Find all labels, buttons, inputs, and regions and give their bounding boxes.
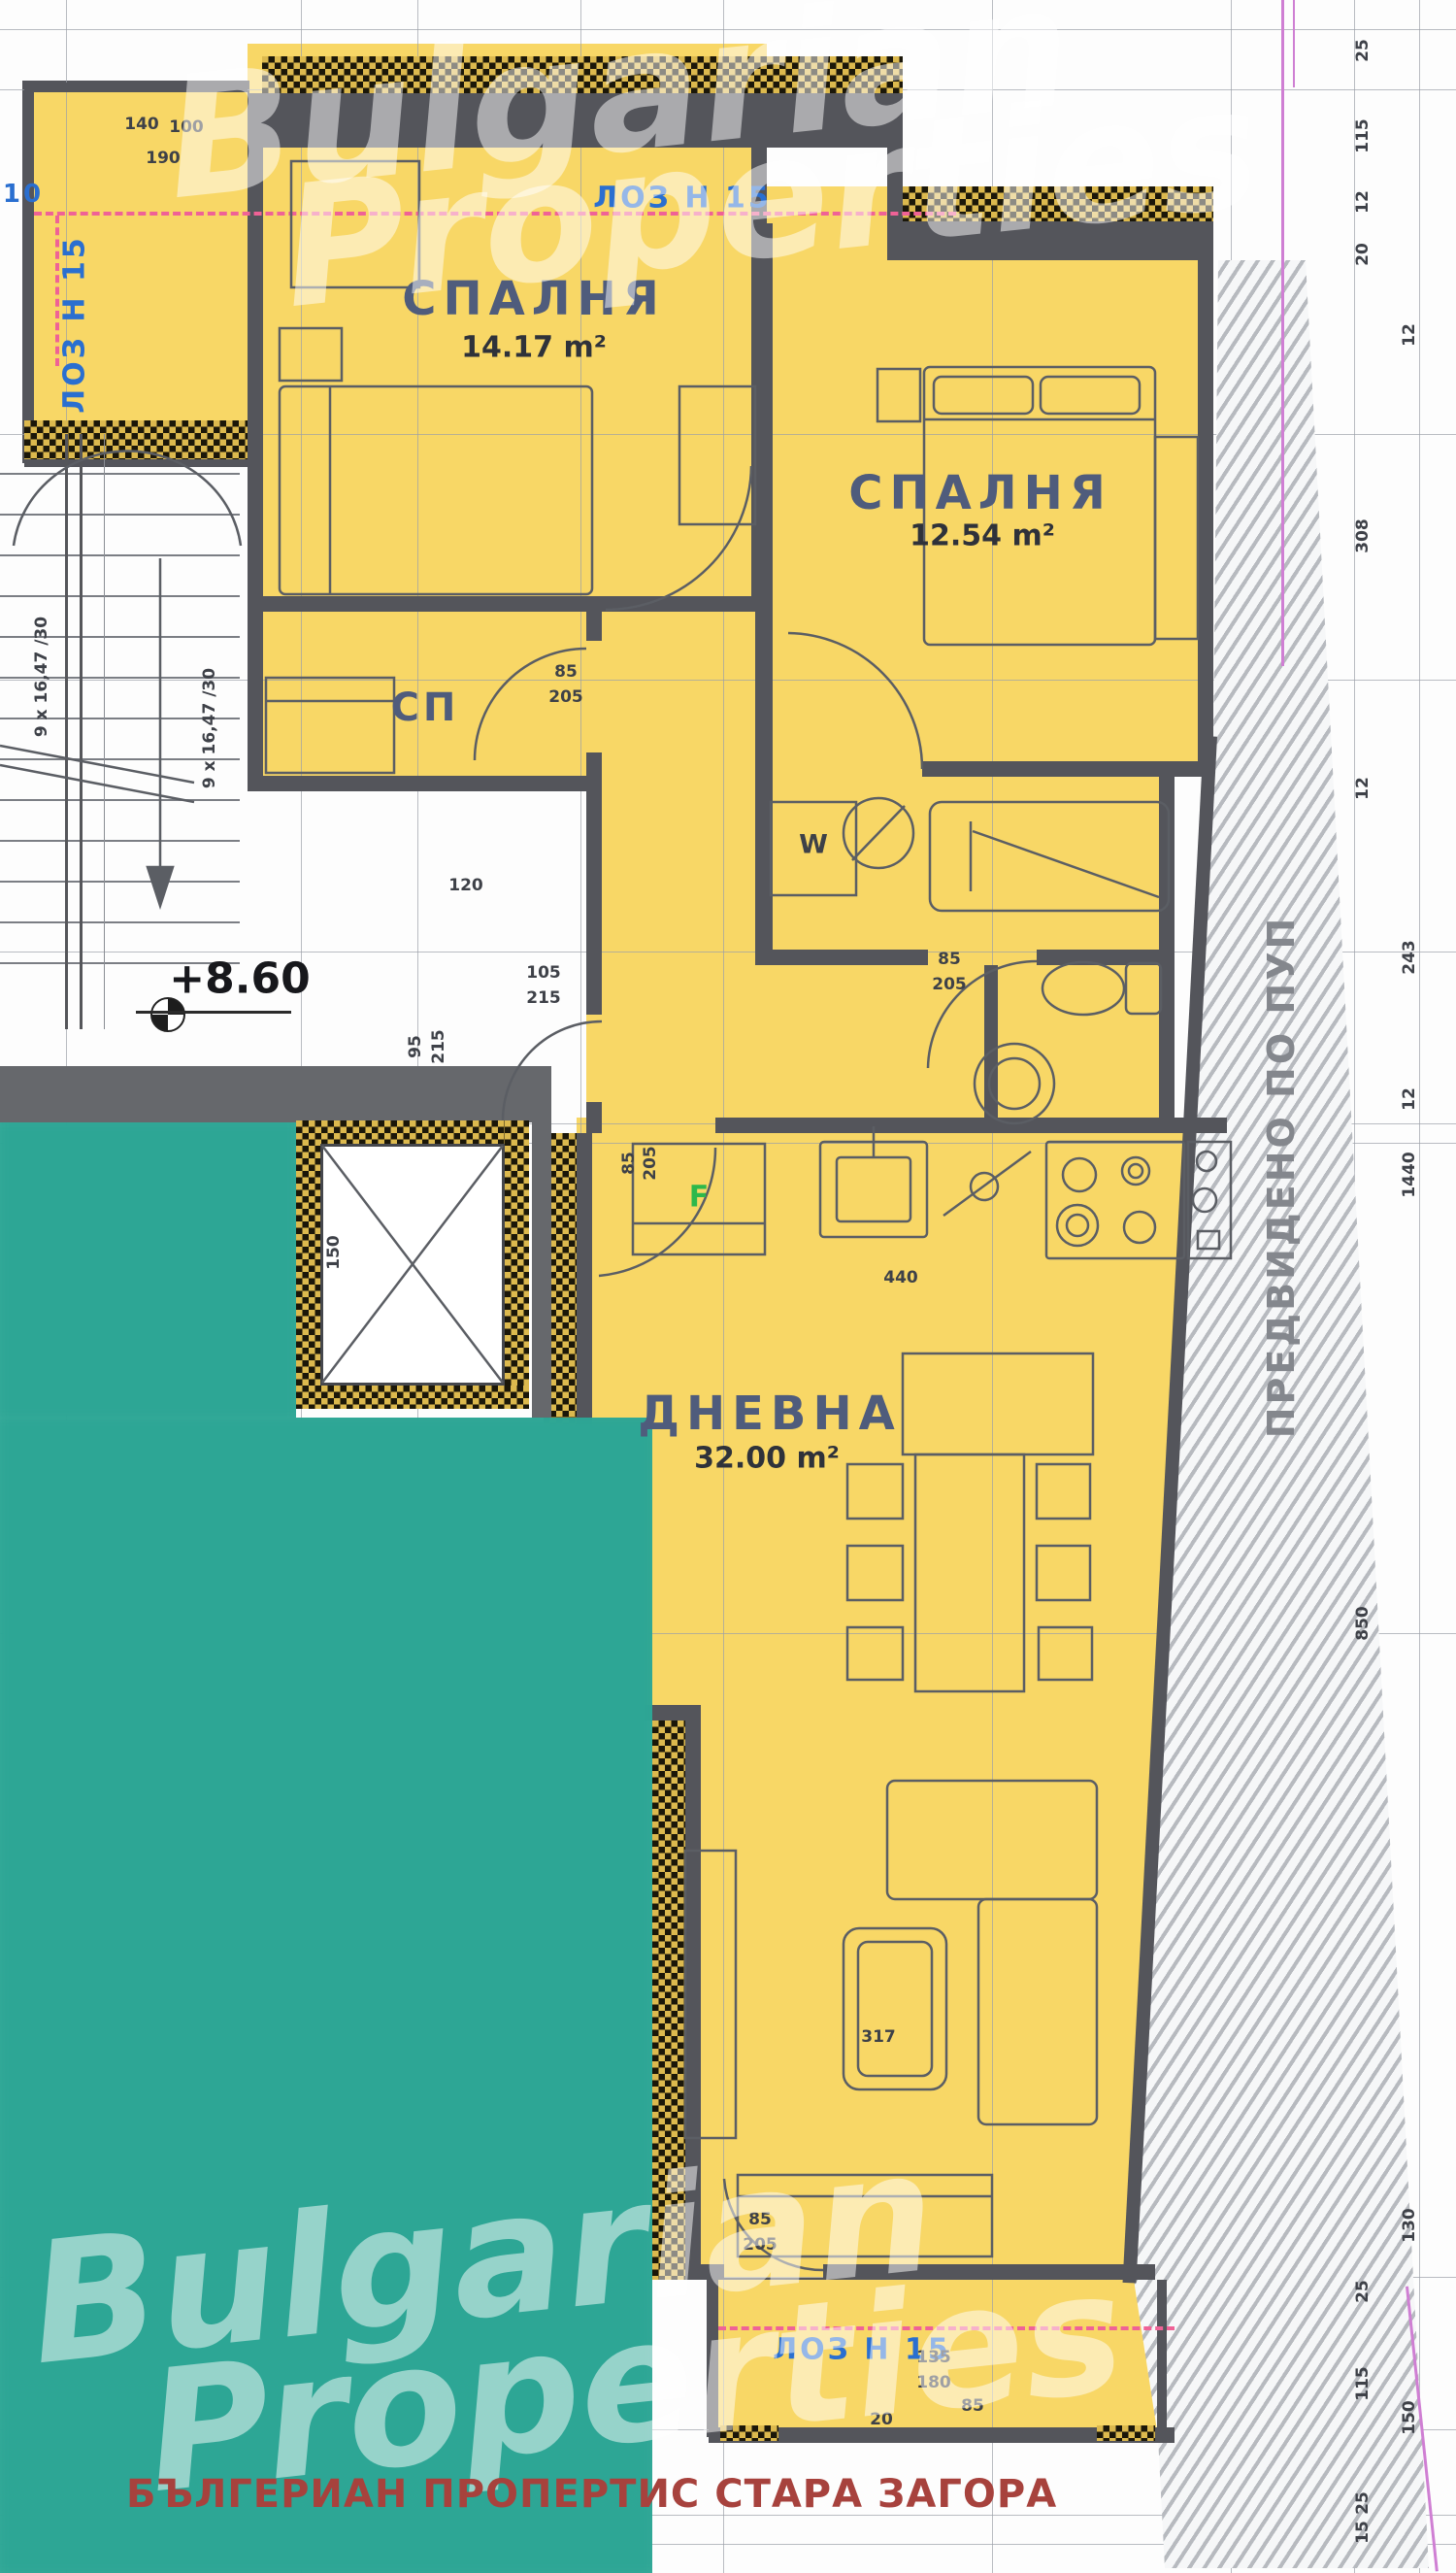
dimension-label: 1440 [1400,1152,1419,1197]
wall [586,752,602,791]
dimension-label: 12 [1400,1087,1419,1111]
wall [755,223,773,965]
dimension-label: 130 [1400,2208,1419,2243]
wall [984,965,998,1118]
regulation-line [1281,0,1284,666]
slab-band [0,1066,551,1122]
dimension-label: 180 [916,2373,951,2392]
dimension-label: 25 [1353,39,1373,62]
stair-note: 9 x 16,47 /30 [32,617,51,737]
dimension-label: 25 [1353,2280,1373,2303]
dimension-label: 120 [448,876,483,895]
dimension-label: 205 [743,2235,778,2255]
wall [1159,777,1175,950]
regulation-line [1293,0,1295,87]
wall [1159,965,1175,1133]
balcony-top-left-label: ЛОЗ Н 15 [58,235,92,413]
dimension-label: 85 [619,1152,639,1175]
wall [685,1721,701,2280]
dimension-label: 20 [1353,243,1373,266]
wall [715,1118,1227,1133]
wall [586,1102,602,1133]
wall [24,83,248,92]
floor-plan: +8.60 СПАЛНЯ 14.17 m² СПАЛНЯ 12.54 m² СП… [0,0,1456,2573]
dimension-label: 205 [548,687,583,707]
grid-reference-label: 10 [3,180,44,209]
grid-line-v [1419,0,1420,2573]
storage-label: СП [391,685,460,730]
fridge-label: F [689,1181,710,1215]
living-area: 32.00 m² [694,1442,840,1476]
wall [767,950,928,965]
wall [586,791,602,1015]
insulation-balcony-bottom [1097,2425,1155,2441]
adjacent-apartment-fill [0,1418,652,2573]
dimension-label: 12 [1400,323,1419,347]
dimension-label: 140 [124,115,159,134]
dimension-label: 25 [1353,2491,1373,2515]
bedroom2-label: СПАЛНЯ [848,466,1112,520]
bedroom1-label: СПАЛНЯ [402,272,666,326]
dimension-label: 85 [938,950,961,969]
grid-line-v [992,0,993,2573]
dimension-label: 85 [554,662,578,682]
stair-rail [65,434,68,1029]
dimension-label: 190 [146,149,181,168]
dimension-label: 150 [1400,2400,1419,2435]
wall [709,2280,718,2443]
elevator-wall [296,1120,320,1409]
bedroom1-area: 14.17 m² [461,331,607,365]
dimension-label: 150 [324,1235,344,1270]
wall [903,221,1213,260]
stair-guide [104,434,105,1029]
elevator-wall [296,1120,529,1144]
insulation-top-1 [262,56,903,93]
dimension-label: 308 [1353,518,1373,553]
wall [248,93,903,148]
old-boundary-dashed-line [718,2326,1175,2330]
wall [1198,221,1213,777]
dimension-label: 115 [1353,2366,1373,2401]
dimension-label: 850 [1353,1606,1373,1641]
dimension-label: 115 [1353,118,1373,153]
adjacent-apartment-fill [0,1122,296,1418]
balcony-top-center-label: ЛОЗ Н 15 [593,182,771,216]
dimension-label: 12 [1353,777,1373,800]
dimension-label: 215 [429,1029,448,1064]
wall [823,2264,1155,2280]
elevator-shaft [320,1144,505,1386]
elevator-wall [296,1386,529,1409]
wall [887,93,903,260]
insulation-living-west-low [652,1721,685,2280]
adjacent-apartment-upper [0,1122,296,1418]
dimension-label: 105 [526,963,561,983]
dimension-label: 100 [169,117,204,137]
dimension-label: 440 [883,1268,918,1287]
wall [586,612,602,641]
living-label: ДНЕВНА [638,1387,902,1441]
bedroom2-area: 12.54 m² [910,519,1055,553]
agency-footer-text: БЪЛГЕРИАН ПРОПЕРТИС СТАРА ЗАГОРА [126,2472,1057,2517]
insulation-top-2 [903,186,1213,221]
dimension-label: 205 [641,1146,660,1181]
grid-line-v [723,0,724,2573]
insulation-balcony-bottom [720,2425,778,2441]
living-lower-fill [652,1721,1155,2280]
dimension-label: 15 [1353,2521,1373,2544]
dimension-label: 85 [748,2210,772,2229]
elevation-marker-line [136,1011,291,1014]
dimension-label: 95 [406,1035,425,1058]
elevation-label: +8.60 [169,954,310,1004]
slab-band-vertical [532,1122,551,1418]
elevator-wall [505,1120,529,1409]
dimension-label: 317 [861,2027,896,2047]
dimension-label: 243 [1400,940,1419,975]
wall [248,612,263,791]
wall [248,596,767,612]
dimension-label: 85 [961,2396,984,2416]
wall [24,83,34,461]
stair-rail [80,434,83,1029]
wall [248,776,602,791]
stair-note: 9 x 16,47 /30 [200,668,219,788]
washing-machine-label: W [799,830,828,860]
wall [1157,2280,1167,2443]
corridor-fill [586,602,773,1133]
wall [1037,950,1175,965]
dimension-label: 205 [932,975,967,994]
wall [248,93,263,612]
adjacent-apartment-lower [0,1418,652,2573]
dimension-label: 215 [526,988,561,1008]
wall [922,761,1198,777]
old-boundary-dashed-line [34,212,956,216]
dimension-label: 12 [1353,190,1373,214]
dimension-label: 20 [870,2410,893,2429]
planning-note: ПРЕДВИДЕНО ПО ПУП [1260,916,1303,1439]
dimension-label: 135 [916,2348,951,2367]
wall [685,2264,724,2280]
grid-line-h [0,29,1456,30]
